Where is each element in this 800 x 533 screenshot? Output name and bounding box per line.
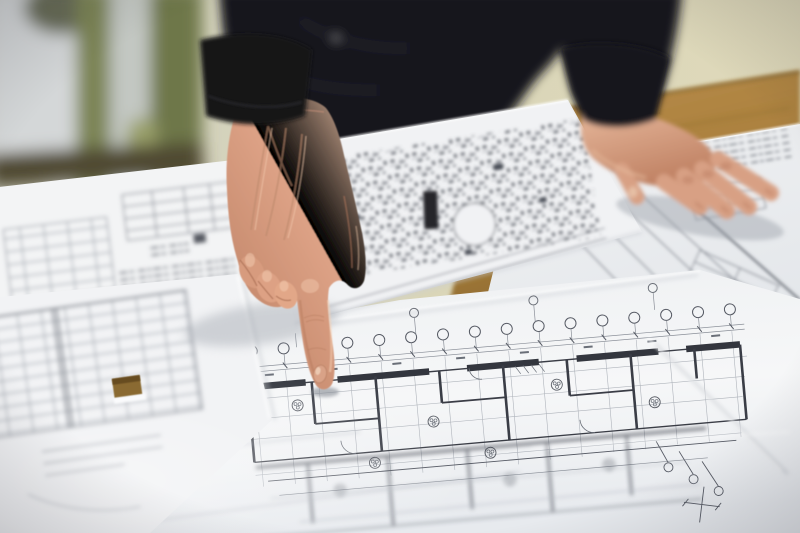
vignette-overlay (0, 0, 800, 533)
photo-svg (0, 0, 800, 533)
photo-canvas (0, 0, 800, 533)
